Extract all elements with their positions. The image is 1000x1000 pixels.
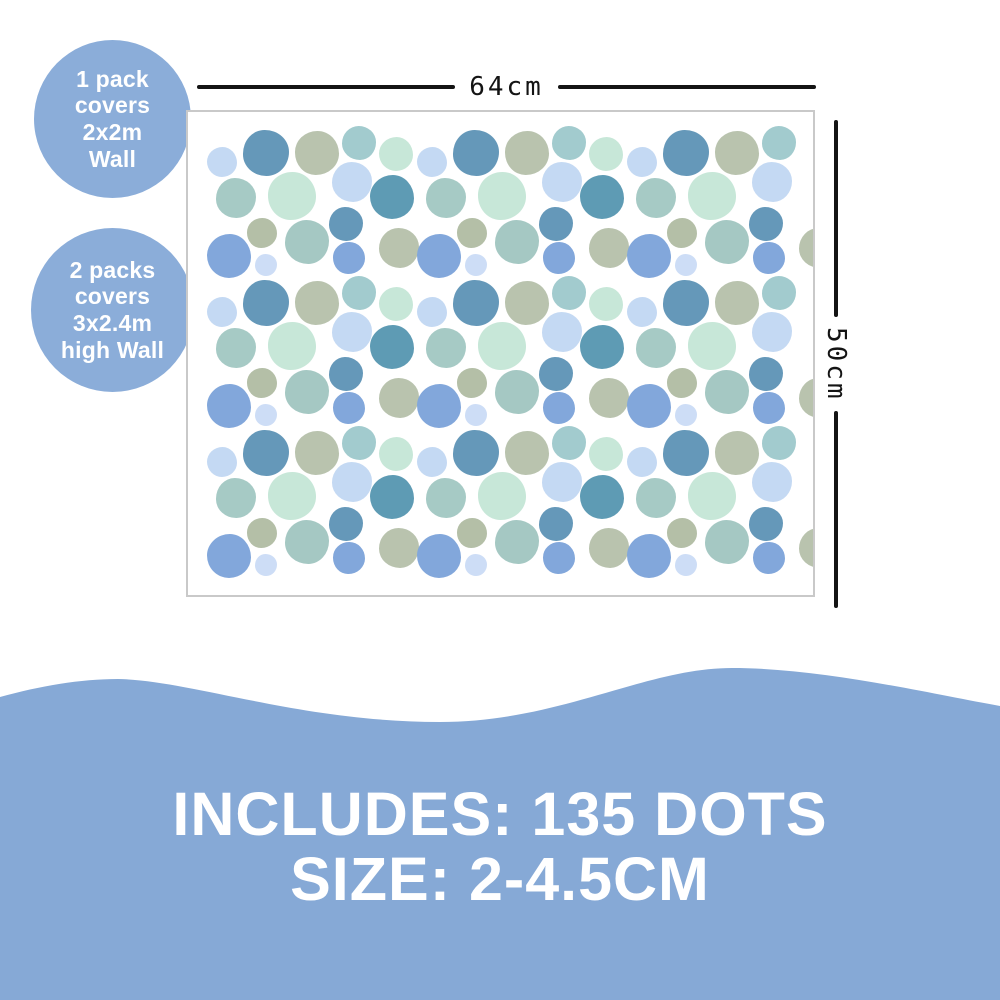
wall-dot — [762, 276, 796, 310]
wall-dot — [705, 220, 749, 264]
wall-dot — [426, 328, 466, 368]
wall-dot — [332, 162, 372, 202]
wall-dot — [495, 520, 539, 564]
wall-dot — [675, 404, 697, 426]
wall-dot — [580, 475, 624, 519]
wall-dot — [752, 162, 792, 202]
wall-dot — [453, 130, 499, 176]
wall-dot — [465, 404, 487, 426]
wall-dot — [753, 392, 785, 424]
wall-dot — [426, 478, 466, 518]
wall-dot — [417, 384, 461, 428]
wall-dot — [688, 322, 736, 370]
wall-dot — [370, 475, 414, 519]
height-dimension-label: 50cm — [821, 327, 851, 402]
wall-dot — [667, 518, 697, 548]
wall-dot — [295, 281, 339, 325]
wall-dot — [799, 378, 815, 418]
wall-dot — [379, 287, 413, 321]
wall-dot — [329, 507, 363, 541]
wall-dot — [589, 528, 629, 568]
wall-dot — [453, 280, 499, 326]
wall-dot — [542, 462, 582, 502]
wall-dot — [207, 234, 251, 278]
wall-dot — [675, 254, 697, 276]
wall-dot — [333, 542, 365, 574]
wall-dot — [688, 172, 736, 220]
sticker-sheet — [186, 110, 815, 597]
width-dim-line-right — [558, 85, 816, 89]
banner: INCLUDES: 135 DOTS SIZE: 2-4.5CM — [0, 782, 1000, 913]
badge-1-text: 1 pack covers 2x2m Wall — [75, 66, 150, 173]
wall-dot — [552, 126, 586, 160]
wall-dot — [329, 207, 363, 241]
wall-dot — [465, 254, 487, 276]
wall-dot — [752, 462, 792, 502]
badge-1-line-3: 2x2m — [75, 119, 150, 146]
wall-dot — [753, 542, 785, 574]
wall-dot — [417, 297, 447, 327]
wall-dot — [268, 172, 316, 220]
wall-dot — [207, 297, 237, 327]
height-dimension: 50cm — [821, 120, 851, 608]
wall-dot — [552, 426, 586, 460]
wall-dot — [247, 518, 277, 548]
width-dimension: 64cm — [197, 73, 816, 101]
wall-dot — [379, 528, 419, 568]
wall-dot — [495, 370, 539, 414]
wall-dot — [207, 534, 251, 578]
wall-dot — [243, 430, 289, 476]
wall-dot — [636, 178, 676, 218]
wall-dot — [589, 378, 629, 418]
wall-dot — [417, 147, 447, 177]
wall-dot — [539, 507, 573, 541]
wall-dot — [247, 218, 277, 248]
wall-dot — [752, 312, 792, 352]
wall-dot — [379, 137, 413, 171]
wall-dot — [333, 242, 365, 274]
width-dimension-label: 64cm — [455, 72, 558, 102]
width-dim-line-left — [197, 85, 455, 89]
wall-dot — [295, 131, 339, 175]
wall-dot — [216, 478, 256, 518]
wall-dot — [715, 431, 759, 475]
wall-dot — [762, 126, 796, 160]
wall-dot — [799, 228, 815, 268]
wall-dot — [268, 472, 316, 520]
wall-dot — [505, 431, 549, 475]
wall-dot — [753, 242, 785, 274]
wall-dot — [342, 426, 376, 460]
wall-dot — [715, 131, 759, 175]
wall-dot — [663, 280, 709, 326]
wall-dot — [627, 534, 671, 578]
wall-dot — [457, 218, 487, 248]
wall-dot — [675, 554, 697, 576]
wall-dot — [216, 328, 256, 368]
wall-dot — [542, 162, 582, 202]
wall-dot — [636, 328, 676, 368]
wall-dot — [749, 357, 783, 391]
wall-dot — [667, 218, 697, 248]
pack-coverage-badge-1: 1 pack covers 2x2m Wall — [34, 40, 191, 198]
wall-dot — [627, 447, 657, 477]
wall-dot — [255, 554, 277, 576]
banner-includes-text: INCLUDES: 135 DOTS — [0, 782, 1000, 847]
wall-dot — [207, 384, 251, 428]
wall-dot — [705, 520, 749, 564]
wall-dot — [379, 437, 413, 471]
wall-dot — [749, 207, 783, 241]
wall-dot — [417, 447, 447, 477]
wall-dot — [216, 178, 256, 218]
wall-dot — [580, 175, 624, 219]
wall-dot — [589, 437, 623, 471]
wall-dot — [329, 357, 363, 391]
wall-dot — [580, 325, 624, 369]
wall-dot — [255, 404, 277, 426]
badge-1-line-4: Wall — [75, 146, 150, 173]
wall-dot — [342, 126, 376, 160]
wall-dot — [505, 131, 549, 175]
wall-dot — [453, 430, 499, 476]
wall-dot — [285, 370, 329, 414]
wall-dot — [542, 312, 582, 352]
wall-dot — [243, 280, 289, 326]
wall-dot — [627, 297, 657, 327]
wall-dot — [333, 392, 365, 424]
wall-dot — [332, 462, 372, 502]
wall-dot — [749, 507, 783, 541]
wall-dot — [543, 542, 575, 574]
badge-2-line-4: high Wall — [61, 337, 164, 364]
wall-dot — [285, 220, 329, 264]
wall-dot — [478, 322, 526, 370]
wall-dot — [705, 370, 749, 414]
wall-dot — [667, 368, 697, 398]
badge-1-line-2: covers — [75, 92, 150, 119]
wall-dot — [417, 534, 461, 578]
badge-2-line-3: 3x2.4m — [61, 310, 164, 337]
wall-dot — [465, 554, 487, 576]
wall-dot — [379, 228, 419, 268]
wall-dot — [495, 220, 539, 264]
wall-dot — [285, 520, 329, 564]
pack-coverage-badge-2: 2 packs covers 3x2.4m high Wall — [31, 228, 194, 392]
wall-dot — [255, 254, 277, 276]
wall-dot — [207, 147, 237, 177]
wall-dot — [627, 234, 671, 278]
wall-dot — [478, 472, 526, 520]
wall-dot — [543, 242, 575, 274]
wall-dot — [627, 147, 657, 177]
wall-dot — [715, 281, 759, 325]
badge-2-line-1: 2 packs — [61, 257, 164, 284]
wall-dot — [370, 175, 414, 219]
wall-dot — [589, 137, 623, 171]
wall-dot — [799, 528, 815, 568]
product-infographic: 1 pack covers 2x2m Wall 2 packs covers 3… — [0, 0, 1000, 1000]
badge-2-line-2: covers — [61, 283, 164, 310]
wall-dot — [295, 431, 339, 475]
wall-dot — [370, 325, 414, 369]
wall-dot — [589, 228, 629, 268]
wall-dot — [457, 518, 487, 548]
wall-dot — [552, 276, 586, 310]
wall-dot — [332, 312, 372, 352]
height-dim-line-bottom — [834, 411, 838, 608]
height-dim-line-top — [834, 120, 838, 317]
badge-2-text: 2 packs covers 3x2.4m high Wall — [61, 257, 164, 364]
banner-size-text: SIZE: 2-4.5CM — [0, 847, 1000, 912]
wall-dot — [539, 357, 573, 391]
wall-dot — [663, 130, 709, 176]
wall-dot — [539, 207, 573, 241]
wall-dot — [207, 447, 237, 477]
wall-dot — [478, 172, 526, 220]
wall-dot — [426, 178, 466, 218]
wall-dot — [417, 234, 461, 278]
wall-dot — [688, 472, 736, 520]
wall-dot — [762, 426, 796, 460]
wall-dot — [663, 430, 709, 476]
wall-dot — [627, 384, 671, 428]
wall-dot — [543, 392, 575, 424]
wall-dot — [505, 281, 549, 325]
wall-dot — [457, 368, 487, 398]
wall-dot — [589, 287, 623, 321]
wall-dot — [247, 368, 277, 398]
wall-dot — [243, 130, 289, 176]
badge-1-line-1: 1 pack — [75, 66, 150, 93]
wall-dot — [379, 378, 419, 418]
wall-dot — [636, 478, 676, 518]
wall-dot — [342, 276, 376, 310]
wall-dot — [268, 322, 316, 370]
